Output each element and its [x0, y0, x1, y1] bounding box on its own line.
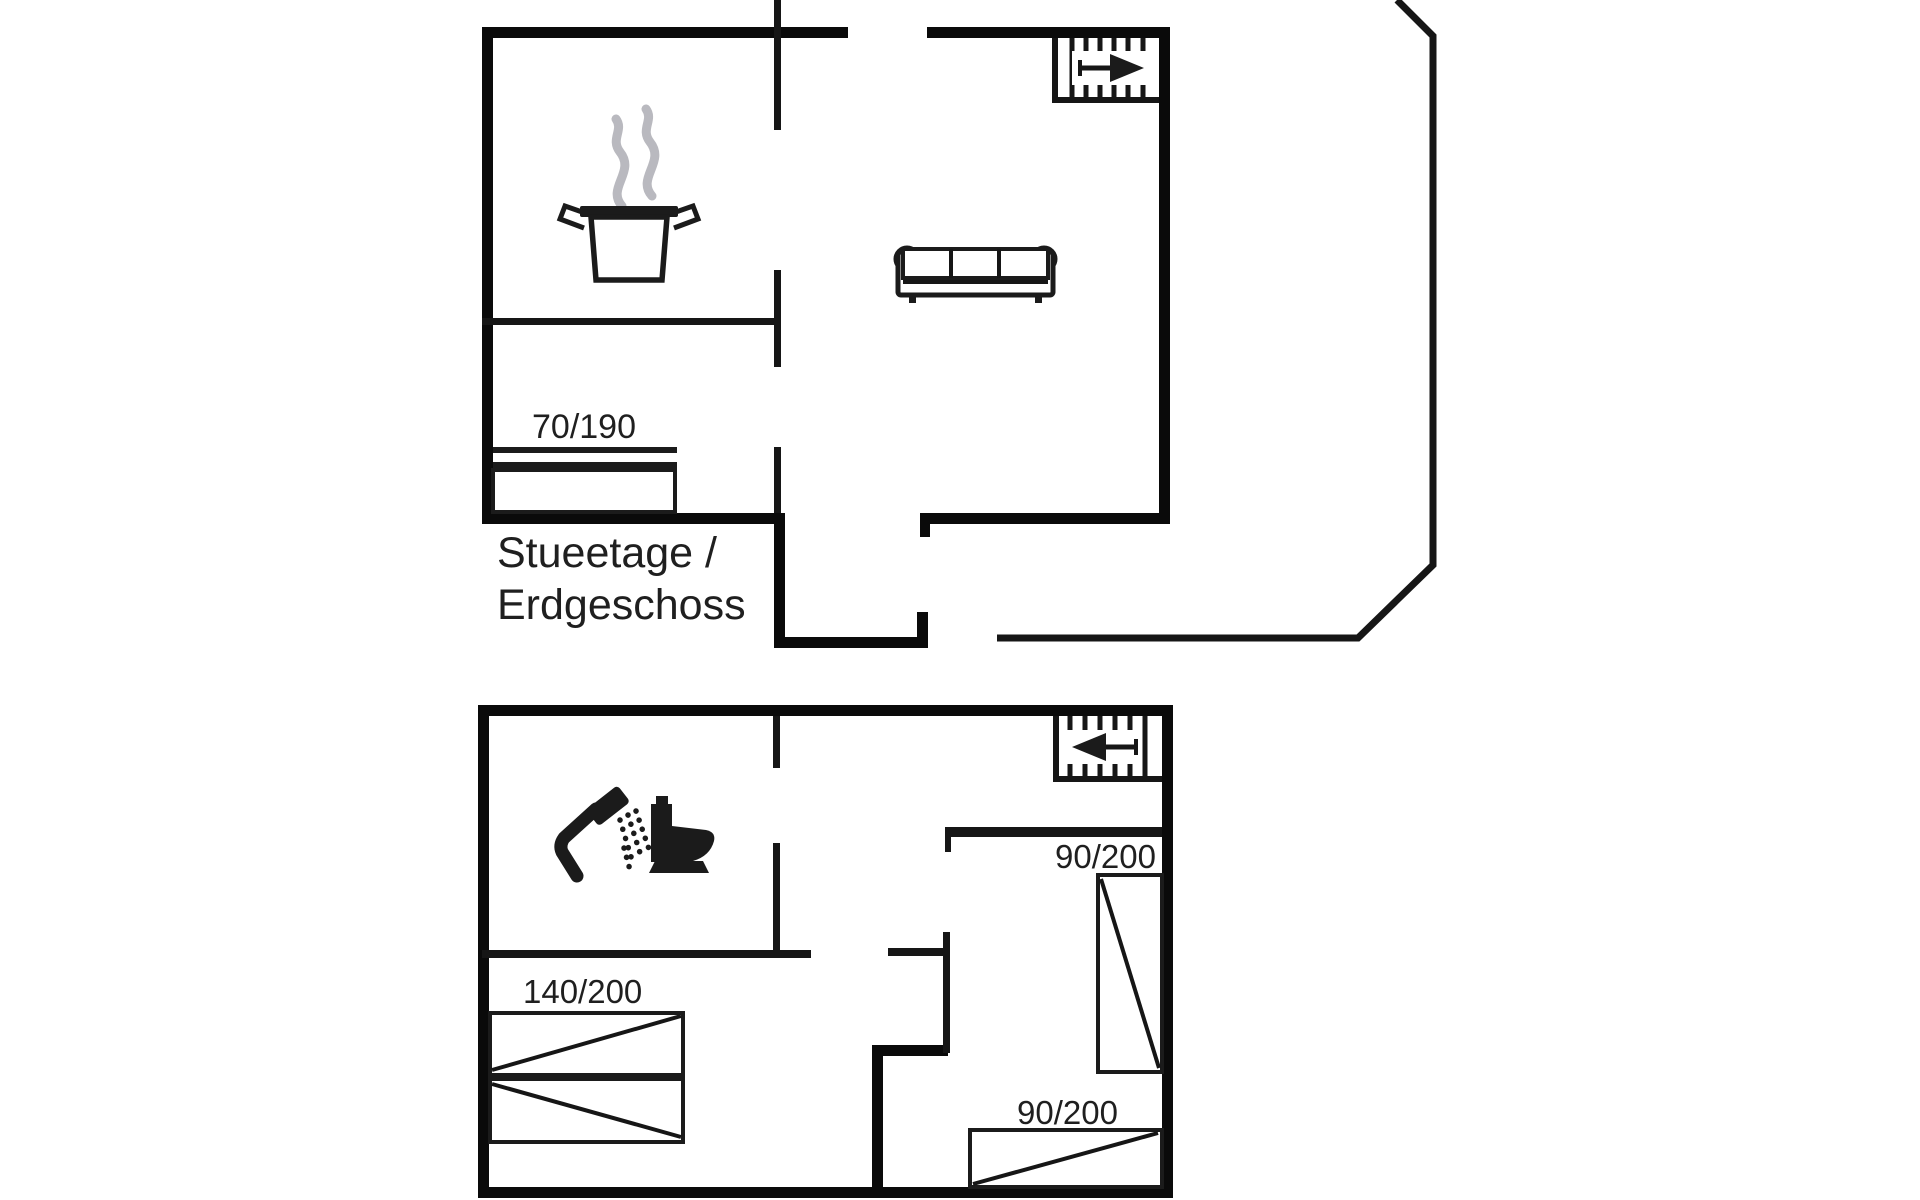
floor-title-line1: Stueetage / [497, 529, 717, 577]
wall-segment [774, 447, 781, 513]
terrace-outline [997, 0, 1433, 638]
toilet-tank-cap [656, 796, 668, 806]
sofa-leg [909, 295, 916, 303]
floorplan-svg: 70/190 Stueetage / Erdgeschoss [0, 0, 1920, 1200]
wall-segment [773, 843, 780, 958]
bed-headboard-line [493, 447, 677, 453]
steam-icon [616, 109, 655, 206]
pot-body [591, 217, 667, 280]
floor-title-line2: Erdgeschoss [497, 581, 746, 629]
wall-segment [482, 318, 777, 325]
steam-wisp [616, 119, 625, 206]
wall-segment [482, 513, 785, 524]
shower-spray [636, 811, 650, 852]
bed-body [493, 470, 675, 512]
wall-segment [482, 27, 848, 38]
wall-segment [774, 513, 785, 648]
toilet-base [649, 861, 709, 873]
bed-size-label: 90/200 [1017, 1094, 1118, 1131]
double-bed-icon [490, 1013, 683, 1142]
toilet-tank [651, 804, 672, 862]
floorplan-canvas: 70/190 Stueetage / Erdgeschoss [0, 0, 1920, 1200]
toilet-icon [649, 796, 714, 873]
stairs-edge [1052, 38, 1058, 103]
wall-segment [927, 27, 1170, 38]
wall-segment [1159, 27, 1170, 524]
stairs-edge [1053, 716, 1059, 782]
wall-segment [872, 1045, 883, 1198]
wall-segment [945, 827, 951, 852]
ground-floor-plan: 70/190 Stueetage / Erdgeschoss [482, 0, 1433, 648]
bed-middle-band [490, 1073, 683, 1081]
bed-size-label: 90/200 [1055, 838, 1156, 875]
wall-segment [917, 612, 928, 648]
wall-segment [920, 513, 930, 537]
bed-headboard-line [493, 462, 677, 470]
wall-segment [888, 948, 945, 956]
upper-floor-plan: 140/200 90/200 90/200 [478, 705, 1173, 1198]
wall-segment [943, 932, 950, 1053]
wall-segment [774, 637, 928, 648]
sofa-icon [896, 248, 1055, 303]
shower-icon [561, 785, 650, 876]
single-bed-icon [970, 1130, 1162, 1187]
single-bed-icon [493, 447, 677, 512]
toilet-bowl [672, 826, 714, 861]
wall-segment [482, 27, 493, 524]
wall-segment [872, 1045, 948, 1056]
wall-segment [478, 705, 1173, 716]
shower-spray [624, 848, 630, 870]
wall-segment [945, 827, 1162, 837]
sofa-leg [1035, 295, 1042, 303]
sofa-back [903, 249, 1048, 278]
kitchen-pot-icon [560, 206, 698, 280]
wall-segment [773, 716, 780, 768]
wall-segment [482, 950, 811, 958]
wall-segment [920, 513, 1170, 524]
shower-arm [561, 809, 596, 876]
wall-segment [774, 0, 781, 130]
steam-wisp [646, 109, 655, 196]
stairs-up-icon [1052, 38, 1159, 103]
bed-size-label: 140/200 [523, 973, 642, 1010]
bed-size-label: 70/190 [532, 408, 636, 446]
stairs-down-icon [1053, 716, 1162, 782]
single-bed-icon [1098, 875, 1162, 1072]
